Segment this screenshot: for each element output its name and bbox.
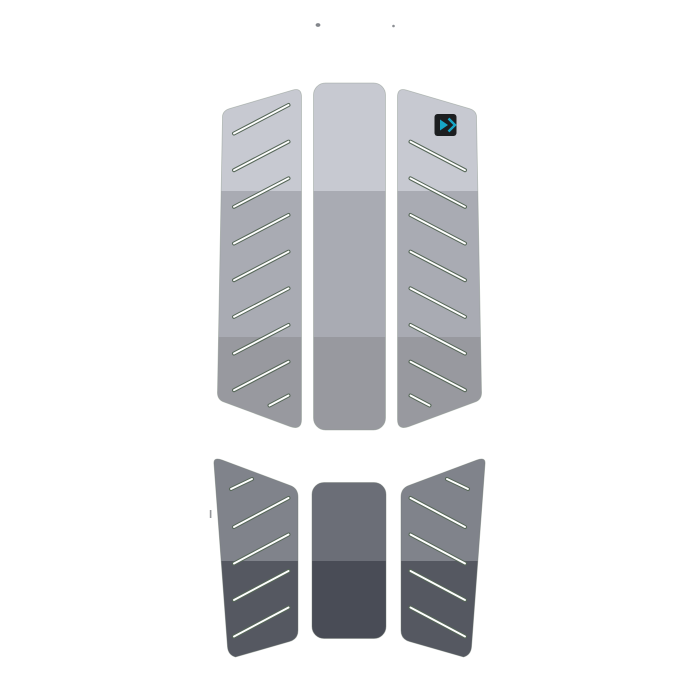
reflection-right-panel (401, 459, 485, 657)
dust-speck (316, 23, 321, 27)
duotone-logo-icon (435, 114, 457, 136)
reflection-center-panel (312, 483, 386, 639)
pad-reflection (214, 459, 485, 657)
product-stage (0, 0, 700, 700)
dust-speck (392, 25, 395, 28)
pad-center-panel (314, 83, 386, 430)
reflection-left-panel (214, 459, 298, 657)
product-image (0, 0, 700, 700)
edge-tick-artifact (210, 510, 212, 518)
